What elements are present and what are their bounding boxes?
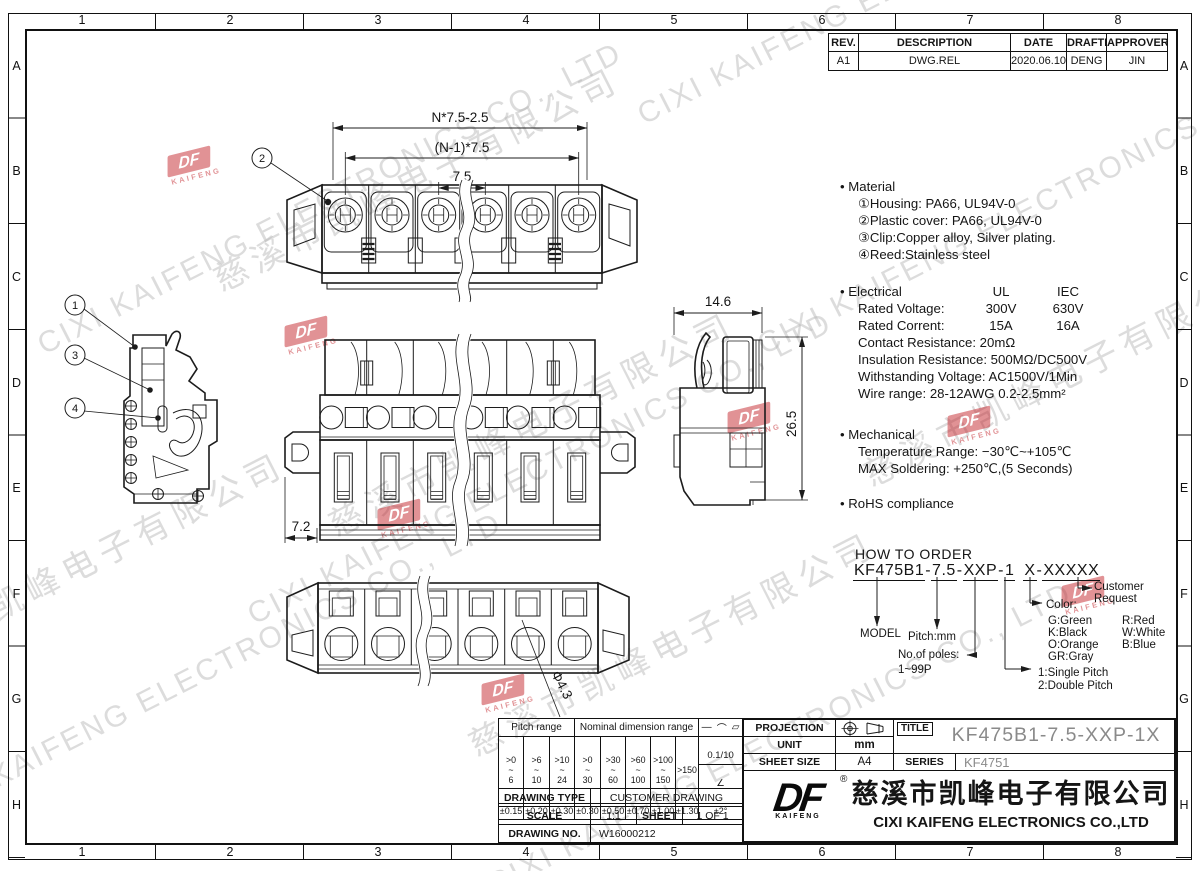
grid-col-label: 8 (1044, 13, 1192, 29)
registered-mark: ® (840, 774, 847, 785)
rohs-note: • RoHS compliance (840, 495, 1178, 512)
grid-row-label: D (1176, 330, 1192, 436)
order-code-arrows (850, 577, 1178, 707)
dim-overall-length: N*7.5-2.5 (431, 110, 488, 125)
section-body (124, 331, 217, 503)
title-block: PROJECTION UNIT mm SHEET SIZE A4 TITLE K… (742, 718, 1176, 843)
dim-center-span: (N-1)*7.5 (435, 140, 490, 155)
grid-col-label: 7 (896, 13, 1044, 29)
callout-2: 2 (252, 148, 326, 200)
how-to-order-panel: HOW TO ORDER KF475B1-7.5-XXP-1X-XXXXX MO… (850, 545, 1178, 710)
grid-row-label: H (8, 752, 25, 858)
mechanical-item: Temperature Range: −30℃~+105℃ (840, 443, 1178, 460)
company-block: DF KAIFENG ® 慈溪市凯峰电子有限公司 CIXI KAIFENG EL… (744, 771, 1178, 843)
unit-value: mm (836, 737, 894, 754)
grid-col-label: 8 (1044, 845, 1192, 860)
series-label: SERIES (894, 754, 956, 771)
mounting-flange-right (598, 583, 629, 673)
grid-col-label: 5 (600, 13, 748, 29)
material-title: • Material (840, 178, 1178, 195)
grid-row-label: F (8, 541, 25, 647)
electrical-iec-value: 16A (1032, 317, 1104, 334)
how-to-order-title: HOW TO ORDER (855, 546, 973, 562)
description-value: DWG.REL (859, 52, 1011, 71)
grid-col-label: 7 (896, 845, 1044, 860)
title-label: TITLE (897, 722, 933, 736)
electrical-ul-value: 300V (970, 300, 1032, 317)
mechanical-title: • Mechanical (840, 426, 1178, 443)
grid-row-label: B (8, 119, 25, 225)
dim-width: 14.6 (705, 294, 731, 309)
material-item: ①Housing: PA66, UL94V-0 (840, 195, 1178, 212)
grid-col-label: 1 (8, 845, 156, 860)
svg-text:1: 1 (72, 300, 78, 312)
electrical-item: Withstanding Voltage: AC1500V/1Min (840, 368, 1178, 385)
approver-header: APPROVER (1107, 34, 1168, 52)
electrical-ul-value: 15A (970, 317, 1032, 334)
svg-text:2: 2 (259, 153, 265, 165)
notes-panel: • Material ①Housing: PA66, UL94V-0 ②Plas… (840, 178, 1178, 512)
unit-label: UNIT (744, 737, 836, 754)
side-view-body (674, 333, 765, 505)
df-logo-text: DF (772, 779, 825, 817)
grid-row-label: G (8, 647, 25, 753)
ul-column-header: UL (970, 283, 1032, 300)
grid-col-label: 5 (600, 845, 748, 860)
mounting-flange-left (285, 432, 320, 473)
date-header: DATE (1011, 34, 1067, 52)
rev-value: A1 (829, 52, 859, 71)
dimension-range-header: Nominal dimension range (575, 719, 699, 737)
series-value: KF4751 (956, 754, 1178, 771)
projection-symbol (836, 720, 894, 737)
drawing-title: KF475B1-7.5-XXP-1X (938, 724, 1174, 747)
sheet-value: 1 OF 1 (683, 807, 743, 825)
front-view-dimension: 7.2 (285, 477, 317, 543)
break-line (416, 576, 432, 686)
grid-col-label: 6 (748, 845, 896, 860)
svg-text:4: 4 (72, 403, 78, 415)
drafter-header: DRAFTER (1067, 34, 1107, 52)
bottom-view-drawing: Φ4.3 (265, 560, 675, 740)
side-view-dimensions: 14.6 26.5 (674, 294, 808, 500)
grid-col-label: 2 (156, 13, 304, 29)
company-name-cn: 慈溪市凯峰电子有限公司 (848, 772, 1174, 811)
mounting-flange-right (600, 432, 635, 473)
drawing-info-table: DRAWING TYPE CUSTOMER DRAWING SCALE 1:1 … (498, 788, 743, 843)
electrical-section: • Electrical UL IEC Rated Voltage: 300V … (840, 283, 1178, 402)
grid-col-label: 6 (748, 13, 896, 29)
flatness-symbol: ▱ (732, 722, 740, 733)
drawing-no-value: W16000212 (591, 825, 743, 843)
bottom-view-body (287, 583, 629, 673)
grid-col-label: 4 (452, 845, 600, 860)
arc-symbol: ⌒ (717, 720, 727, 735)
approver-value: JIN (1107, 52, 1168, 71)
grid-row-label: E (1176, 435, 1192, 541)
drawing-no-label: DRAWING NO. (499, 825, 591, 843)
electrical-label: Rated Voltage: (840, 300, 970, 317)
grid-row-label: F (1176, 541, 1192, 647)
electrical-item: Insulation Resistance: 500MΩ/DC500V (840, 351, 1178, 368)
drawing-type-value: CUSTOMER DRAWING (591, 789, 743, 807)
dim-flange: 7.2 (292, 519, 311, 534)
projection-label: PROJECTION (744, 720, 836, 737)
scale-label: SCALE (499, 807, 591, 825)
grid-row-label: E (8, 435, 25, 541)
mechanical-item: MAX Soldering: +250℃,(5 Seconds) (840, 460, 1178, 477)
sheet-size-value: A4 (836, 754, 894, 771)
grid-col-label: 2 (156, 845, 304, 860)
electrical-label: Rated Corrent: (840, 317, 970, 334)
grid-row-label: A (1176, 13, 1192, 119)
top-view-drawing: N*7.5-2.5 (N-1)*7.5 7.5 (245, 100, 655, 305)
grid-col-label: 4 (452, 13, 600, 29)
pitch-range-header: Pitch range (499, 719, 575, 737)
hole-dimension: Φ4.3 (522, 620, 575, 717)
straightness-symbol: — (702, 722, 712, 733)
material-item: ④Reed:Stainless steel (840, 246, 1178, 263)
description-header: DESCRIPTION (859, 34, 1011, 52)
grid-row-label: B (1176, 119, 1192, 225)
grid-row-label: H (1176, 752, 1192, 858)
front-view-drawing: 7.2 (265, 320, 675, 560)
electrical-item: Wire range: 28-12AWG 0.2-2.5mm² (840, 385, 1178, 402)
electrical-item: Contact Resistance: 20mΩ (840, 334, 1178, 351)
grid-row-label: A (8, 13, 25, 119)
electrical-iec-value: 630V (1032, 300, 1104, 317)
engineering-drawing-sheet: CIXI KAIFENG ELECTRONICS CO., LTD 慈溪市凯峰电… (0, 0, 1200, 871)
mounting-flange-left (287, 583, 318, 673)
flatness-tolerance: 0.1/10 (699, 747, 742, 765)
grid-col-label: 3 (304, 13, 452, 29)
sheet-size-label: SHEET SIZE (744, 754, 836, 771)
section-view-drawing: 1 3 4 (58, 288, 258, 523)
date-value: 2020.06.10 (1011, 52, 1067, 71)
grid-row-label: C (8, 224, 25, 330)
grid-col-label: 1 (8, 13, 156, 29)
rev-header: REV. (829, 34, 859, 52)
side-view-drawing: 14.6 26.5 (650, 285, 825, 525)
revision-table: REV. DESCRIPTION DATE DRAFTER APPROVER A… (828, 33, 1168, 71)
drawing-type-label: DRAWING TYPE (499, 789, 591, 807)
callout-1: 1 (65, 295, 138, 350)
iec-column-header: IEC (1032, 283, 1104, 300)
material-item: ②Plastic cover: PA66, UL94V-0 (840, 212, 1178, 229)
grid-row-label: D (8, 330, 25, 436)
grid-row-label: G (1176, 647, 1192, 753)
dim-height: 26.5 (784, 411, 799, 437)
svg-text:3: 3 (72, 350, 78, 362)
scale-value: 1:1 (591, 807, 637, 825)
drafter-value: DENG (1067, 52, 1107, 71)
revision-row: A1 DWG.REL 2020.06.10 DENG JIN (829, 52, 1168, 71)
grid-col-label: 3 (304, 845, 452, 860)
callout-3: 3 (65, 345, 153, 393)
mechanical-section: • Mechanical Temperature Range: −30℃~+10… (840, 426, 1178, 477)
sheet-label: SHEET (637, 807, 683, 825)
material-section: • Material ①Housing: PA66, UL94V-0 ②Plas… (840, 178, 1178, 263)
grid-row-label: C (1176, 224, 1192, 330)
company-logo: DF KAIFENG (758, 779, 838, 820)
company-name-en: CIXI KAIFENG ELECTRONICS CO.,LTD (848, 814, 1174, 831)
electrical-title: • Electrical (840, 283, 970, 300)
material-item: ③Clip:Copper alloy, Silver plating. (840, 229, 1178, 246)
callout-4: 4 (65, 398, 161, 421)
